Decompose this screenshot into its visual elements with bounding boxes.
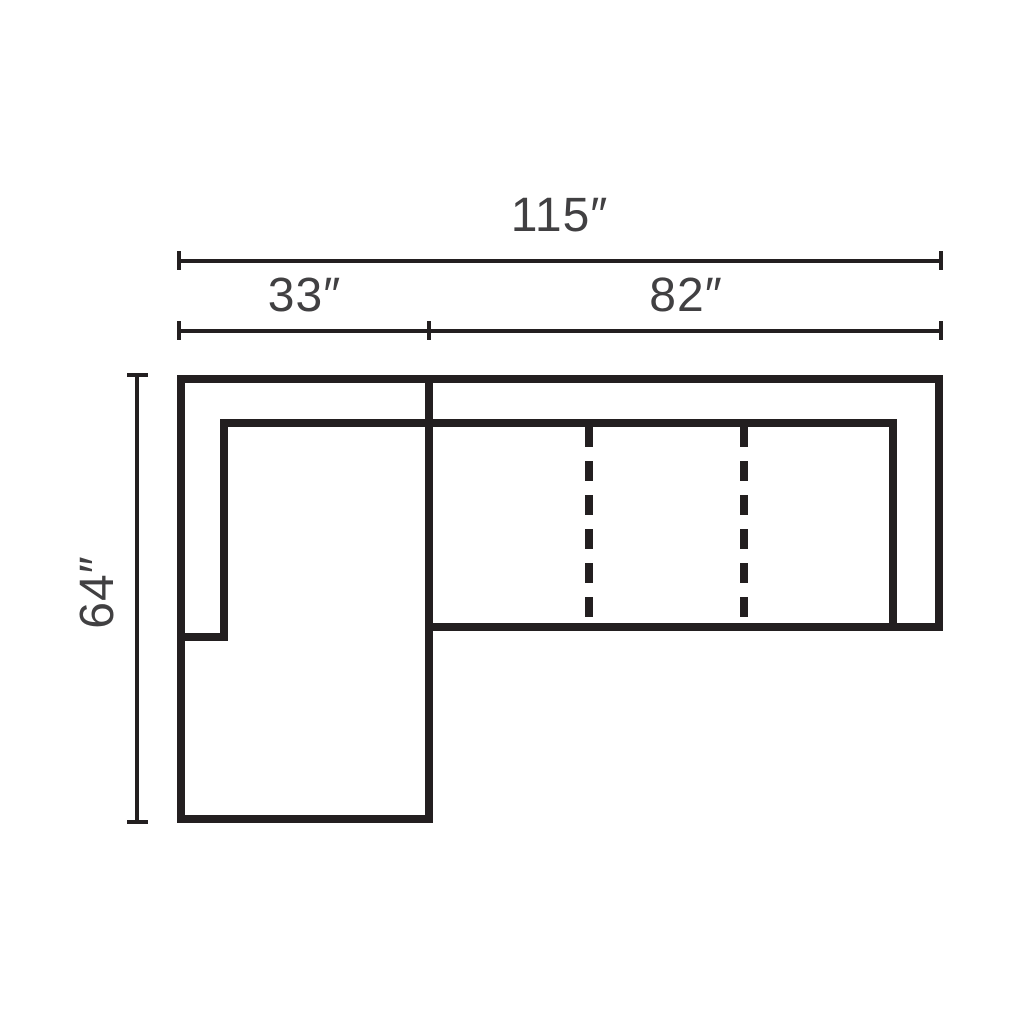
cushion-divider-dashed-right bbox=[740, 427, 748, 623]
overall-width-tick-right-icon bbox=[939, 251, 943, 270]
chaise-bottom-edge bbox=[177, 815, 433, 823]
chaise-width-label: 33″ bbox=[178, 272, 431, 320]
sofa-outline-left-edge bbox=[177, 375, 185, 823]
dimension-diagram: 115″ 33″ 82″ 64″ bbox=[0, 0, 1024, 1024]
depth-tick-bottom-icon bbox=[127, 820, 148, 824]
sofa-arm-inner-right-line bbox=[889, 419, 897, 631]
segment-width-tick-middle-icon bbox=[427, 321, 431, 340]
cushion-divider-dashed-left bbox=[585, 427, 593, 623]
sofa-outline-top-edge bbox=[177, 375, 943, 383]
sofa-outline-right-edge bbox=[935, 375, 943, 631]
seat-width-label: 82″ bbox=[431, 272, 941, 320]
chaise-arm-notch-line bbox=[177, 633, 228, 641]
overall-width-label: 115″ bbox=[178, 192, 941, 240]
chaise-divider-line bbox=[425, 375, 433, 823]
depth-label: 64″ bbox=[74, 532, 122, 652]
segment-width-dimension-line bbox=[178, 329, 941, 333]
chaise-arm-inner-line bbox=[220, 419, 228, 641]
segment-width-tick-right-icon bbox=[939, 321, 943, 340]
depth-tick-top-icon bbox=[127, 373, 148, 377]
sofa-back-inner-line bbox=[220, 419, 897, 427]
overall-width-dimension-line bbox=[178, 259, 941, 263]
segment-width-tick-left-icon bbox=[177, 321, 181, 340]
sofa-seat-front-edge bbox=[425, 623, 943, 631]
overall-width-tick-left-icon bbox=[177, 251, 181, 270]
depth-dimension-line bbox=[135, 375, 139, 822]
